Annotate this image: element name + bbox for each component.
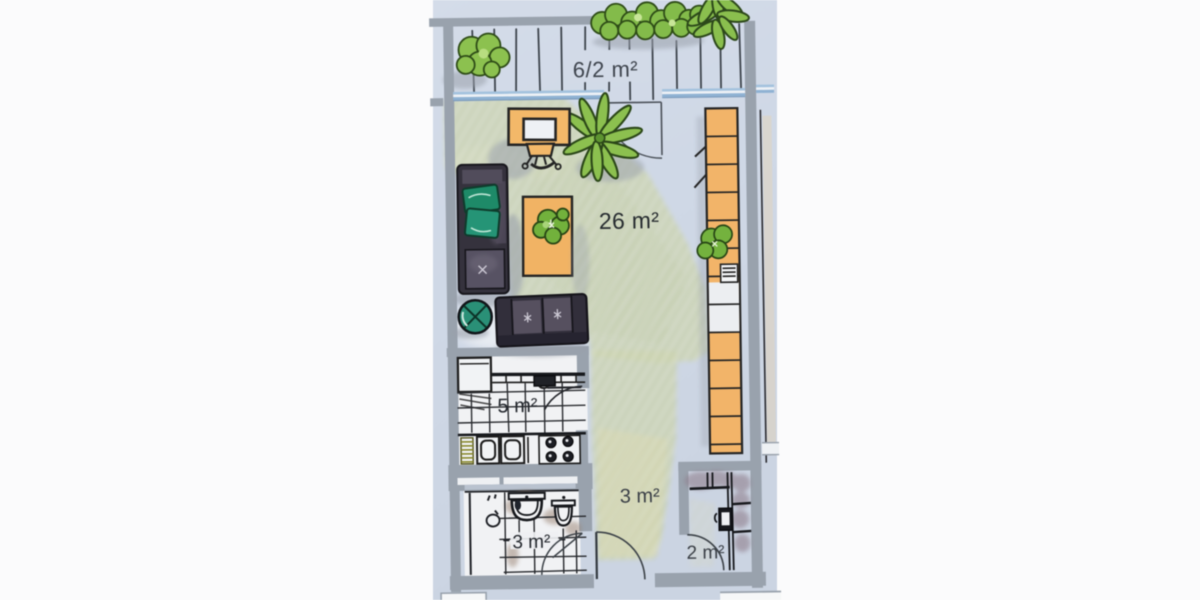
svg-text:2 m²: 2 m² [686,542,724,564]
svg-text:3 m²: 3 m² [512,532,550,554]
svg-text:26 m²: 26 m² [599,207,660,234]
svg-text:3 m²: 3 m² [620,485,661,508]
svg-text:5 m²: 5 m² [497,395,538,418]
svg-text:6/2 m²: 6/2 m² [573,56,639,82]
